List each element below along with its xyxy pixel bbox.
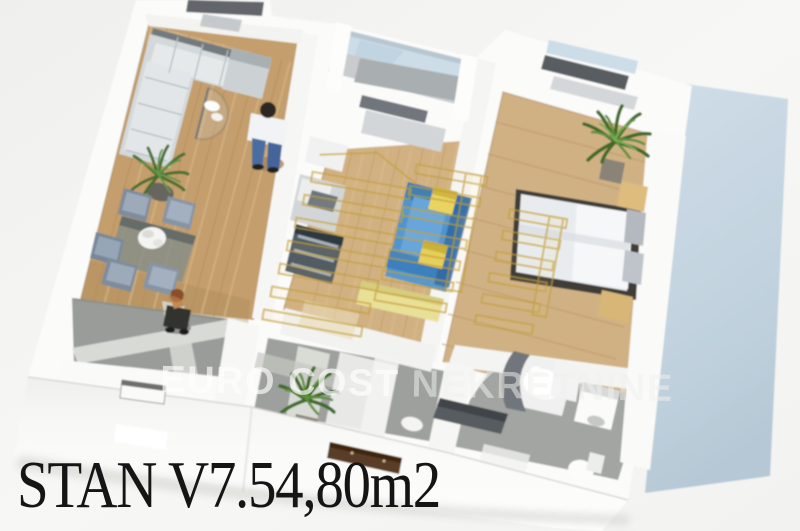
svg-text:EURO COST NEKRETNINE: EURO COST NEKRETNINE — [160, 359, 674, 410]
svg-text:STAN V7.54,80m2: STAN V7.54,80m2 — [17, 449, 440, 522]
